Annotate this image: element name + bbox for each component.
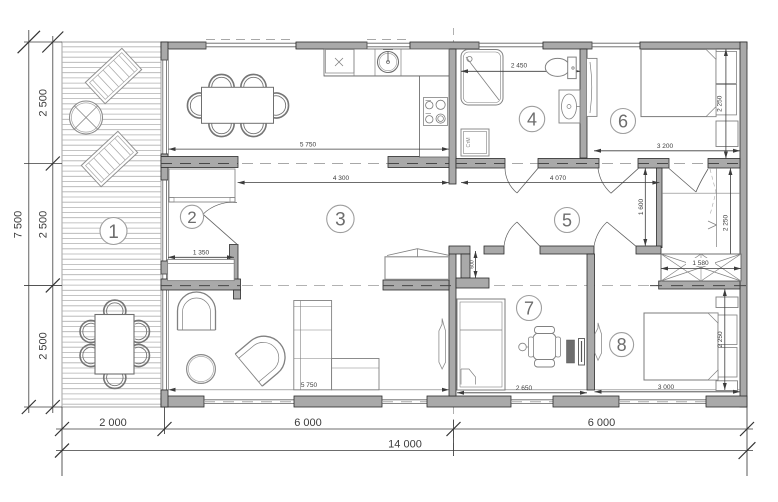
svg-text:2 250: 2 250 [716, 95, 723, 112]
svg-text:1: 1 [108, 222, 119, 243]
svg-text:7: 7 [524, 298, 534, 318]
svg-text:2 450: 2 450 [511, 63, 528, 70]
svg-text:1 600: 1 600 [638, 198, 645, 215]
svg-text:8: 8 [617, 335, 627, 355]
svg-text:2 000: 2 000 [99, 417, 127, 429]
svg-text:5 750: 5 750 [300, 141, 317, 148]
svg-text:2 250: 2 250 [717, 331, 724, 348]
svg-text:6: 6 [618, 111, 628, 131]
svg-text:5: 5 [562, 210, 572, 230]
svg-text:2 250: 2 250 [723, 214, 730, 231]
svg-text:2 500: 2 500 [38, 332, 50, 360]
svg-text:7 500: 7 500 [13, 211, 25, 239]
svg-text:3 200: 3 200 [657, 143, 674, 150]
svg-text:1 580: 1 580 [692, 260, 709, 267]
svg-text:1 350: 1 350 [193, 250, 210, 257]
svg-text:14 000: 14 000 [388, 439, 422, 451]
svg-text:4 300: 4 300 [333, 175, 350, 182]
svg-text:2 650: 2 650 [516, 385, 533, 392]
svg-text:6 000: 6 000 [588, 417, 616, 429]
svg-text:600: 600 [469, 260, 475, 269]
svg-text:СтМ: СтМ [466, 137, 472, 147]
svg-text:3 000: 3 000 [658, 384, 675, 391]
svg-text:4: 4 [527, 109, 537, 129]
svg-text:2 500: 2 500 [38, 211, 50, 239]
svg-text:3: 3 [335, 210, 346, 231]
svg-text:2: 2 [187, 208, 196, 227]
svg-text:4 070: 4 070 [550, 175, 567, 182]
svg-text:6 000: 6 000 [294, 417, 322, 429]
svg-text:5 750: 5 750 [301, 382, 318, 389]
svg-text:2 500: 2 500 [38, 89, 50, 117]
